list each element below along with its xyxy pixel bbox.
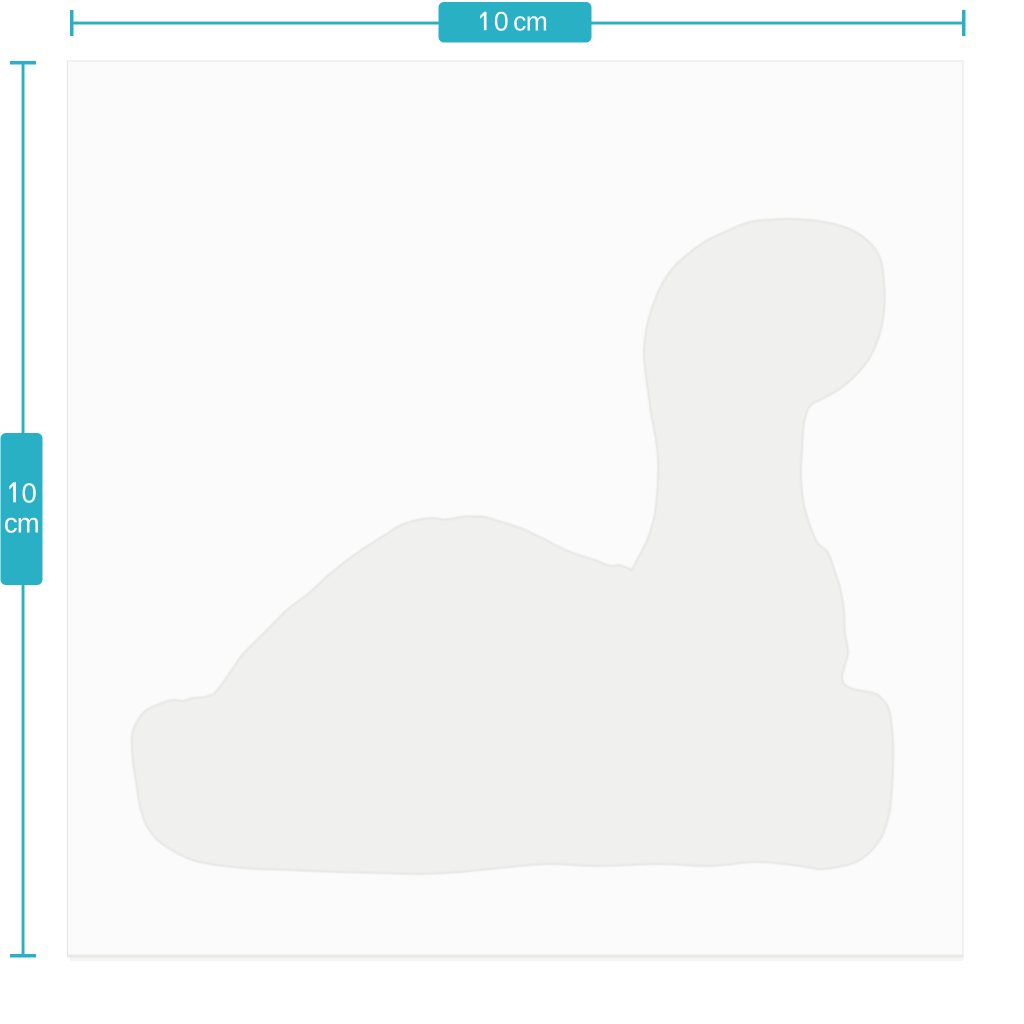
svg-text:cm: cm	[513, 6, 547, 36]
svg-text:0: 0	[22, 477, 37, 508]
svg-text:cm: cm	[4, 508, 39, 539]
svg-text:0: 0	[494, 6, 509, 36]
